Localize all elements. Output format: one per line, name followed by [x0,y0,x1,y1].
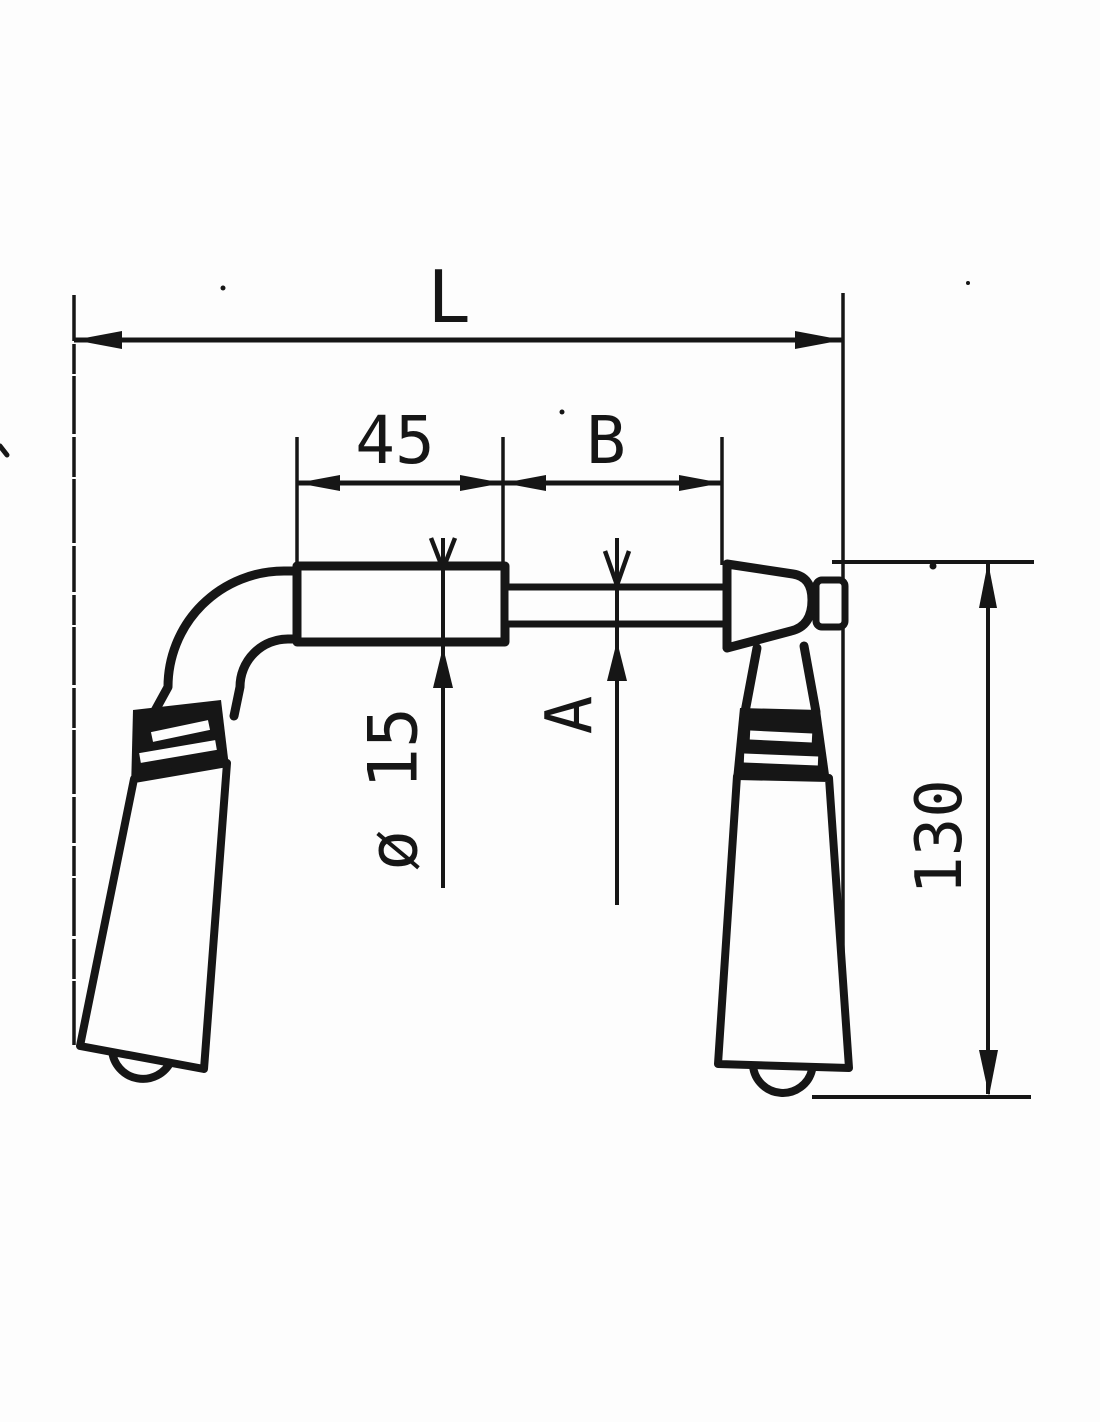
arrowhead-right [460,475,503,491]
right-collar [733,708,830,782]
dimension-label-B: B [586,402,626,479]
arrowhead-up [607,641,627,681]
extension-lines [74,293,1034,1097]
arrowhead-up [979,562,997,608]
dimension-label-A: A [533,696,607,735]
figure-canvas: L 45 B ø 15 A 130 [0,0,1100,1422]
scan-speck [966,281,970,285]
arrowhead-left [74,331,122,349]
scan-speck [221,286,226,291]
arrowhead-left [297,475,340,491]
scan-speck [560,410,565,415]
arrowhead-left [503,475,546,491]
right-collar-groove [744,758,818,761]
arrowhead-up [433,647,453,688]
neck-sleeve [297,566,505,642]
dimension-overall-length: L [74,255,843,349]
handle-drawing: L 45 B ø 15 A 130 [0,0,1100,1422]
arrowhead-down [979,1050,998,1096]
rose-cone [727,564,812,648]
right-collar-groove [750,735,812,738]
right-neck-right-edge [804,646,816,712]
left-grip [80,763,227,1069]
lever-assembly [80,564,849,1093]
left-bend-inner-edge [234,639,300,716]
rose-cap [816,580,845,627]
dimension-45: 45 [297,402,503,577]
dimension-130: 130 [903,562,998,1096]
dimension-label-L: L [427,255,470,339]
scan-mark [0,446,7,455]
dimension-B: B [503,402,722,565]
dimension-label-130: 130 [903,779,977,895]
right-grip [718,776,849,1068]
dimension-label-diameter: ø 15 [354,707,433,871]
arrowhead-right [679,475,722,491]
right-neck-left-edge [745,648,757,712]
dimension-label-45: 45 [355,402,434,479]
arrowhead-right [795,331,843,349]
scan-artifacts [0,281,970,570]
